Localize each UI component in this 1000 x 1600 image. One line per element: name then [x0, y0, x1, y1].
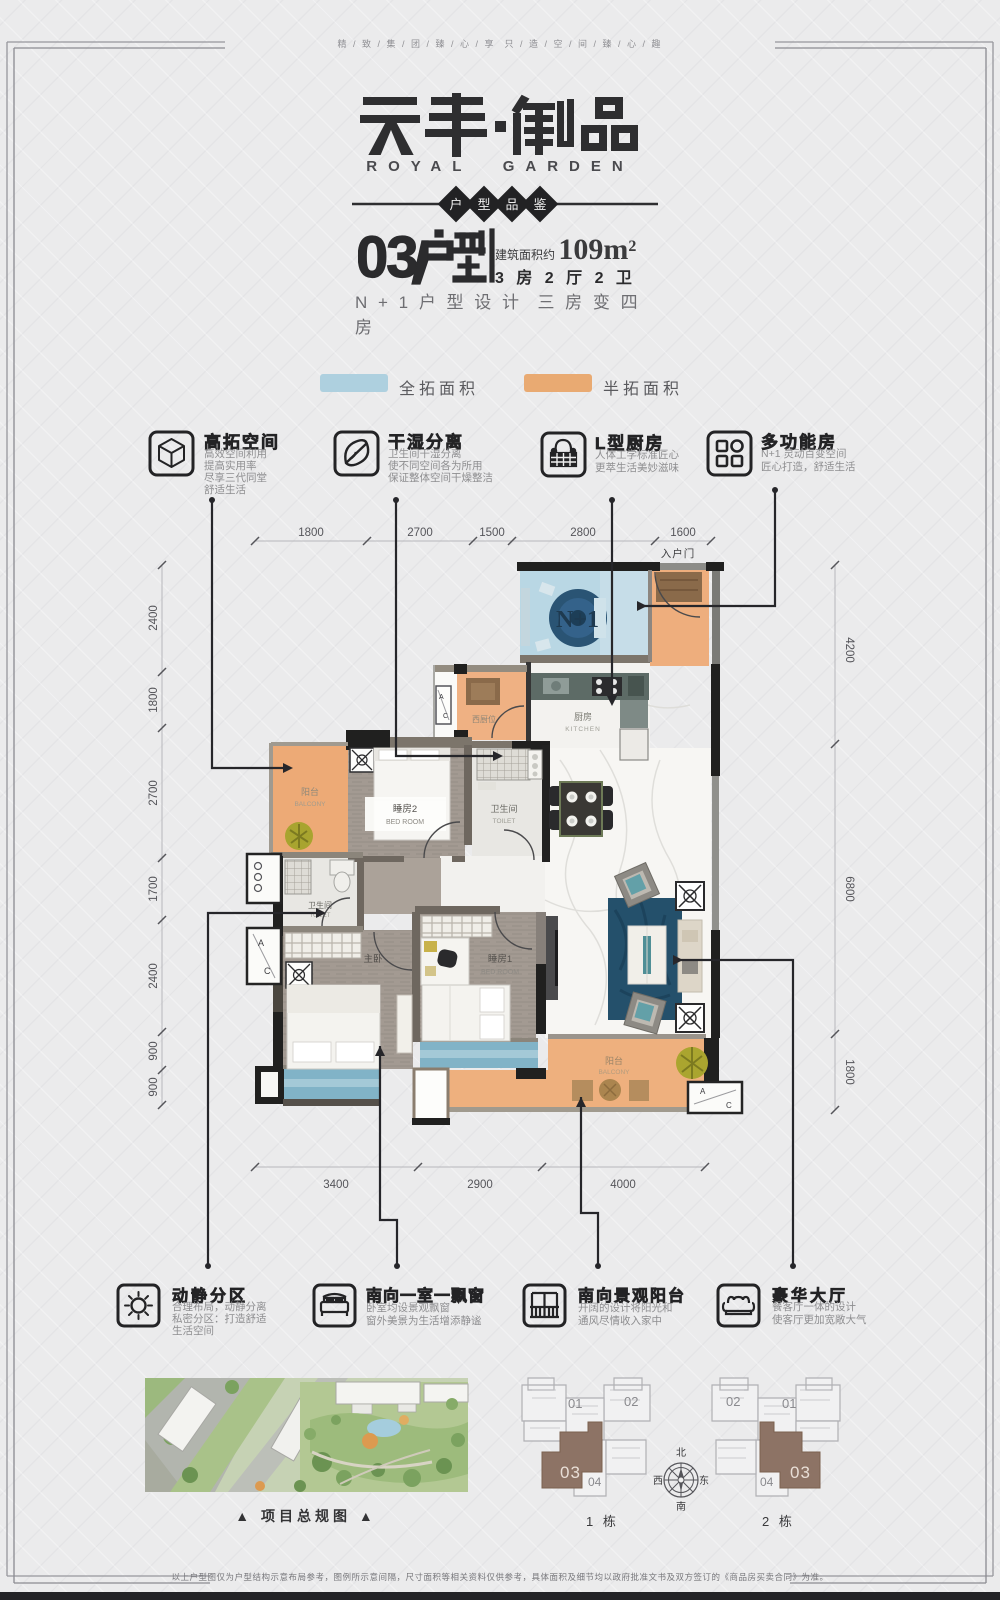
- svg-text:01: 01: [782, 1396, 796, 1411]
- svg-text:▲ 项目总规图 ▲: ▲ 项目总规图 ▲: [235, 1508, 377, 1524]
- svg-text:03: 03: [560, 1463, 581, 1482]
- svg-text:04: 04: [760, 1475, 774, 1489]
- svg-text:02: 02: [726, 1394, 740, 1409]
- svg-text:1 栋: 1 栋: [586, 1514, 619, 1529]
- svg-text:01: 01: [568, 1396, 582, 1411]
- svg-text:西: 西: [653, 1476, 663, 1487]
- svg-text:北: 北: [676, 1447, 686, 1459]
- svg-text:东: 东: [699, 1474, 709, 1487]
- svg-text:南: 南: [676, 1500, 686, 1513]
- svg-text:2 栋: 2 栋: [762, 1514, 795, 1529]
- svg-text:02: 02: [624, 1394, 638, 1409]
- svg-text:03: 03: [790, 1463, 811, 1482]
- svg-text:04: 04: [588, 1475, 602, 1489]
